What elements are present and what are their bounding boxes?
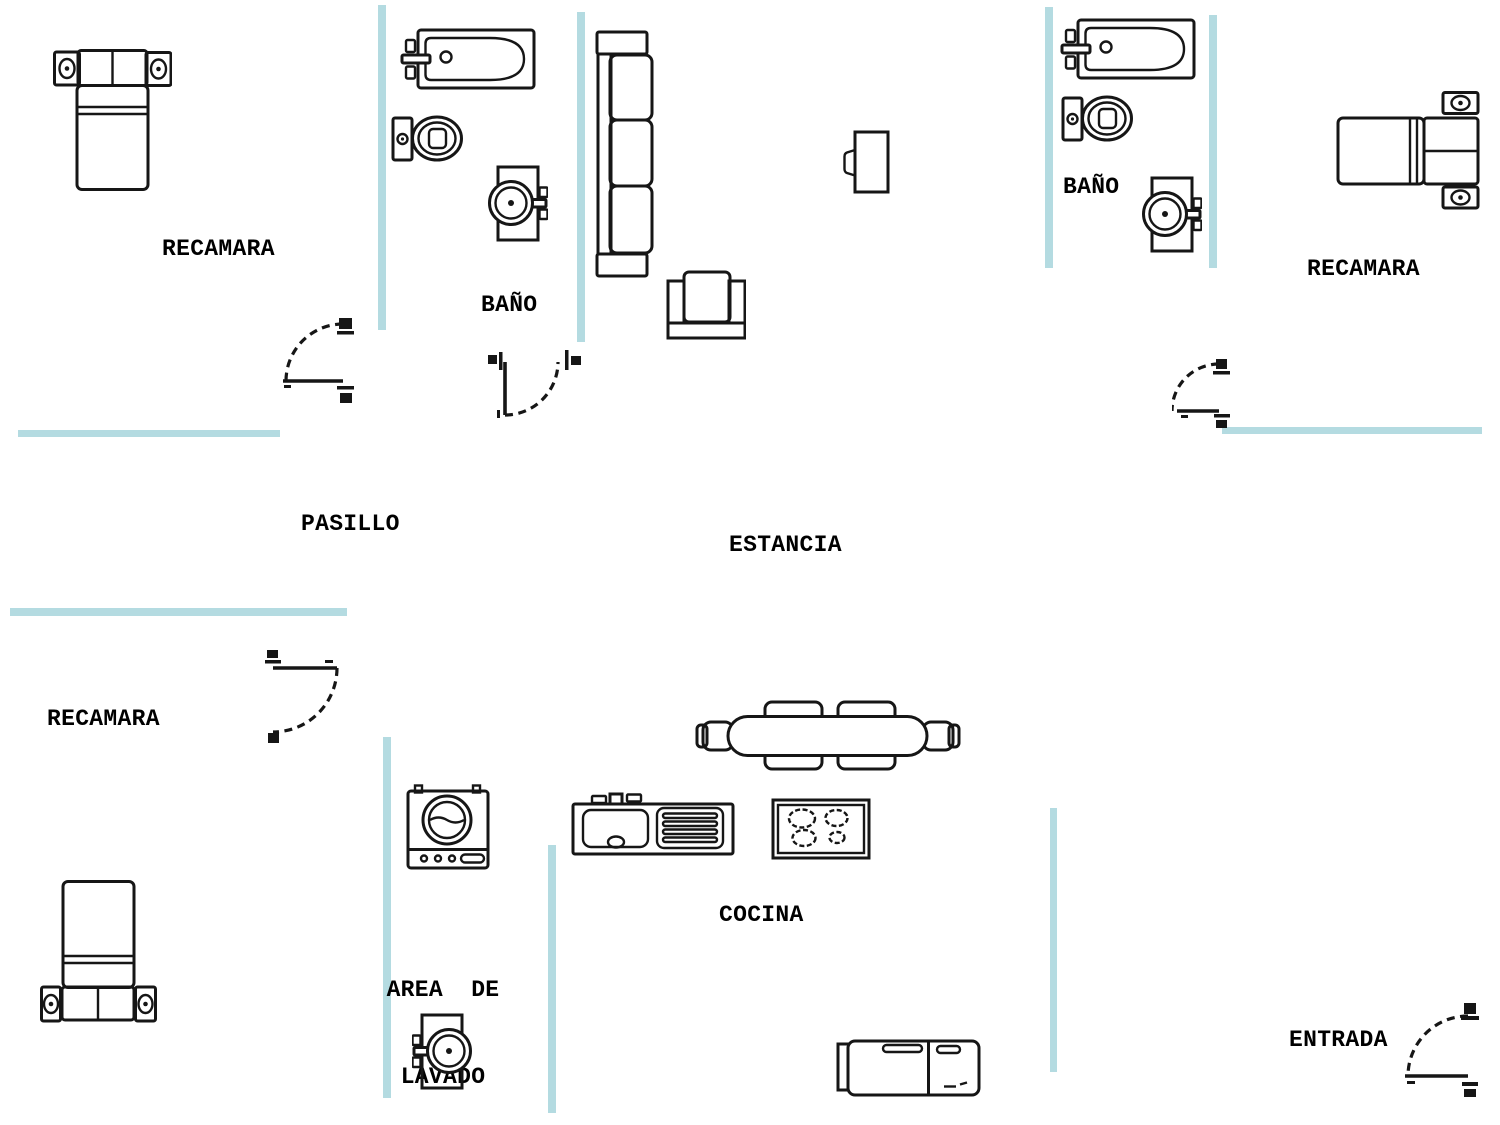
toilet-icon	[1061, 90, 1136, 145]
double-bed-icon	[40, 878, 158, 1024]
tv-icon	[840, 128, 892, 196]
label-estancia: ESTANCIA	[729, 534, 842, 557]
wall-lavado-right	[548, 845, 556, 1113]
dining-table-icon	[695, 695, 961, 775]
floor-plan: RECAMARA BAÑO ESTANCIA BAÑO RECAMARA PAS…	[0, 0, 1500, 1125]
double-bed-icon	[50, 44, 172, 192]
sofa-icon	[593, 30, 655, 280]
label-recamara-top-right: RECAMARA	[1307, 258, 1420, 281]
label-bano-right: BAÑO	[1063, 176, 1119, 199]
label-area-de-lavado-line1: AREA DE	[385, 976, 501, 1005]
bathtub-icon	[394, 24, 542, 94]
label-pasillo: PASILLO	[301, 513, 400, 536]
label-cocina: COCINA	[719, 904, 804, 927]
door-swing-icon	[263, 648, 341, 744]
label-entrada: ENTRADA	[1289, 1029, 1388, 1052]
door-swing-icon	[1172, 355, 1232, 430]
wall-bath1-left	[378, 5, 386, 330]
wall-pasillo	[10, 608, 347, 616]
cooktop-icon	[770, 797, 872, 861]
double-bed-icon	[1335, 90, 1481, 210]
wall-bath2-right	[1209, 15, 1217, 268]
wall-bedroom2-bottom	[1222, 427, 1482, 434]
wall-cocina-right	[1050, 808, 1057, 1072]
pedestal-sink-icon	[488, 165, 548, 250]
bathtub-icon	[1054, 14, 1202, 84]
door-swing-icon	[278, 312, 358, 407]
kitchen-sink-icon	[570, 790, 738, 858]
door-swing-icon	[486, 348, 582, 420]
label-recamara-top-left: RECAMARA	[162, 238, 275, 261]
pedestal-sink-icon	[412, 1013, 472, 1098]
pedestal-sink-icon	[1142, 176, 1202, 261]
wall-bath1-right	[577, 12, 585, 342]
wall-bedroom1-bottom	[18, 430, 280, 437]
label-recamara-mid-left: RECAMARA	[47, 708, 160, 731]
washing-machine-icon	[406, 784, 490, 872]
refrigerator-icon	[836, 1038, 982, 1098]
armchair-icon	[666, 270, 746, 340]
door-swing-icon	[1400, 1000, 1482, 1098]
toilet-icon	[391, 110, 466, 165]
label-bano-left: BAÑO	[481, 294, 537, 317]
wall-bath2-left	[1045, 7, 1053, 268]
